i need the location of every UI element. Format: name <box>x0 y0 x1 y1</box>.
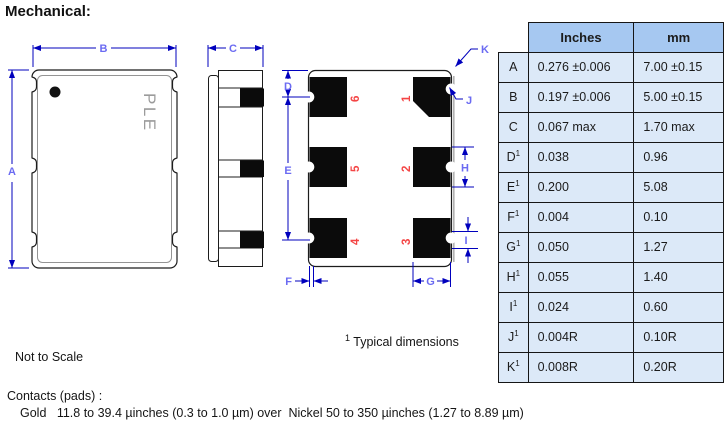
value-inches: 0.050 <box>528 232 634 262</box>
contacts-plating-detail: Gold 11.8 to 39.4 µinches (0.3 to 1.0 µm… <box>20 406 524 420</box>
dim-row-label: K1 <box>499 352 529 382</box>
table-row: D10.0380.96 <box>499 142 724 172</box>
dim-label-a: A <box>8 166 16 178</box>
value-mm: 0.10R <box>634 322 724 352</box>
dim-row-label: G1 <box>499 232 529 262</box>
value-mm: 1.27 <box>634 232 724 262</box>
package-marking: PLE <box>140 93 159 133</box>
dim-row-label: I1 <box>499 292 529 322</box>
pad-3-notch <box>446 233 457 244</box>
dim-label-d: D <box>284 81 292 93</box>
side-pad-top <box>240 89 264 107</box>
pad-number-6: 6 <box>350 96 362 102</box>
table-row: F10.0040.10 <box>499 202 724 232</box>
dim-row-label: B <box>499 82 529 112</box>
value-inches: 0.024 <box>528 292 634 322</box>
dim-k-leader <box>456 49 479 67</box>
not-to-scale-note: Not to Scale <box>15 350 83 364</box>
pad-number-3: 3 <box>401 239 413 245</box>
value-inches: 0.055 <box>528 262 634 292</box>
value-inches: 0.008R <box>528 352 634 382</box>
value-inches: 0.067 max <box>528 112 634 142</box>
table-row: A0.276 ±0.0067.00 ±0.15 <box>499 52 724 82</box>
dim-label-j: J <box>466 95 472 107</box>
dim-row-label: C <box>499 112 529 142</box>
value-mm: 1.70 max <box>634 112 724 142</box>
value-mm: 1.40 <box>634 262 724 292</box>
dimension-table: Inches mm A0.276 ±0.0067.00 ±0.15 B0.197… <box>498 22 724 383</box>
value-mm: 7.00 ±0.15 <box>634 52 724 82</box>
dim-row-label: D1 <box>499 142 529 172</box>
dim-f-extension-lines <box>310 266 314 287</box>
dim-label-i: I <box>464 235 467 247</box>
table-row: B0.197 ±0.0065.00 ±0.15 <box>499 82 724 112</box>
value-inches: 0.200 <box>528 172 634 202</box>
pad-number-1: 1 <box>401 95 413 102</box>
pad-5 <box>310 147 348 187</box>
pad-1-notch <box>446 84 457 95</box>
side-pad-bottom <box>240 232 264 249</box>
side-view-lid <box>209 76 219 262</box>
table-row: J10.004R0.10R <box>499 322 724 352</box>
pin1-dot <box>50 87 61 98</box>
package-side-view: C <box>208 43 264 267</box>
col-header-mm: mm <box>634 23 724 53</box>
table-row: E10.2005.08 <box>499 172 724 202</box>
table-corner-cell <box>499 23 529 53</box>
value-inches: 0.004R <box>528 322 634 352</box>
contacts-heading: Contacts (pads) : <box>7 389 102 403</box>
side-pad-middle <box>240 161 264 178</box>
pad-6 <box>310 77 348 117</box>
value-inches: 0.038 <box>528 142 634 172</box>
value-mm: 0.60 <box>634 292 724 322</box>
pad-number-5: 5 <box>350 165 362 172</box>
pad-4-notch <box>303 233 314 244</box>
value-mm: 5.08 <box>634 172 724 202</box>
value-inches: 0.004 <box>528 202 634 232</box>
dim-row-label: F1 <box>499 202 529 232</box>
table-row: C0.067 max1.70 max <box>499 112 724 142</box>
value-inches: 0.276 ±0.006 <box>528 52 634 82</box>
dim-label-f: F <box>285 276 292 288</box>
dim-row-label: H1 <box>499 262 529 292</box>
dim-label-b: B <box>100 43 108 55</box>
pad-2 <box>413 147 451 187</box>
table-row: H10.0551.40 <box>499 262 724 292</box>
value-mm: 0.96 <box>634 142 724 172</box>
package-top-view: B A PLE <box>8 43 177 268</box>
dim-row-label: J1 <box>499 322 529 352</box>
pad-number-4: 4 <box>350 238 362 245</box>
dim-label-k: K <box>481 44 489 56</box>
pad-5-notch <box>303 162 314 173</box>
col-header-inches: Inches <box>528 23 634 53</box>
table-row: G10.0501.27 <box>499 232 724 262</box>
typical-dimensions-footnote: 1 Typical dimensions <box>345 333 459 349</box>
value-mm: 0.20R <box>634 352 724 382</box>
mechanical-drawing: B A PLE C <box>0 0 495 315</box>
pad-number-2: 2 <box>401 166 413 172</box>
dim-label-g: G <box>426 276 435 288</box>
table-row: I10.0240.60 <box>499 292 724 322</box>
dim-row-label: A <box>499 52 529 82</box>
dim-label-e: E <box>284 165 291 177</box>
pad-4 <box>310 218 348 258</box>
package-bottom-view: 1 2 3 4 5 6 D E F G H I K <box>282 44 489 288</box>
pad-3 <box>413 218 451 258</box>
pad-2-notch <box>446 162 457 173</box>
value-inches: 0.197 ±0.006 <box>528 82 634 112</box>
dim-label-c: C <box>229 43 237 55</box>
dim-label-h: H <box>461 163 469 175</box>
table-row: K10.008R0.20R <box>499 352 724 382</box>
value-mm: 5.00 ±0.15 <box>634 82 724 112</box>
dim-row-label: E1 <box>499 172 529 202</box>
datasheet-page: { "title": "Mechanical:", "drawings": { … <box>0 0 724 424</box>
value-mm: 0.10 <box>634 202 724 232</box>
table-header-row: Inches mm <box>499 23 724 53</box>
